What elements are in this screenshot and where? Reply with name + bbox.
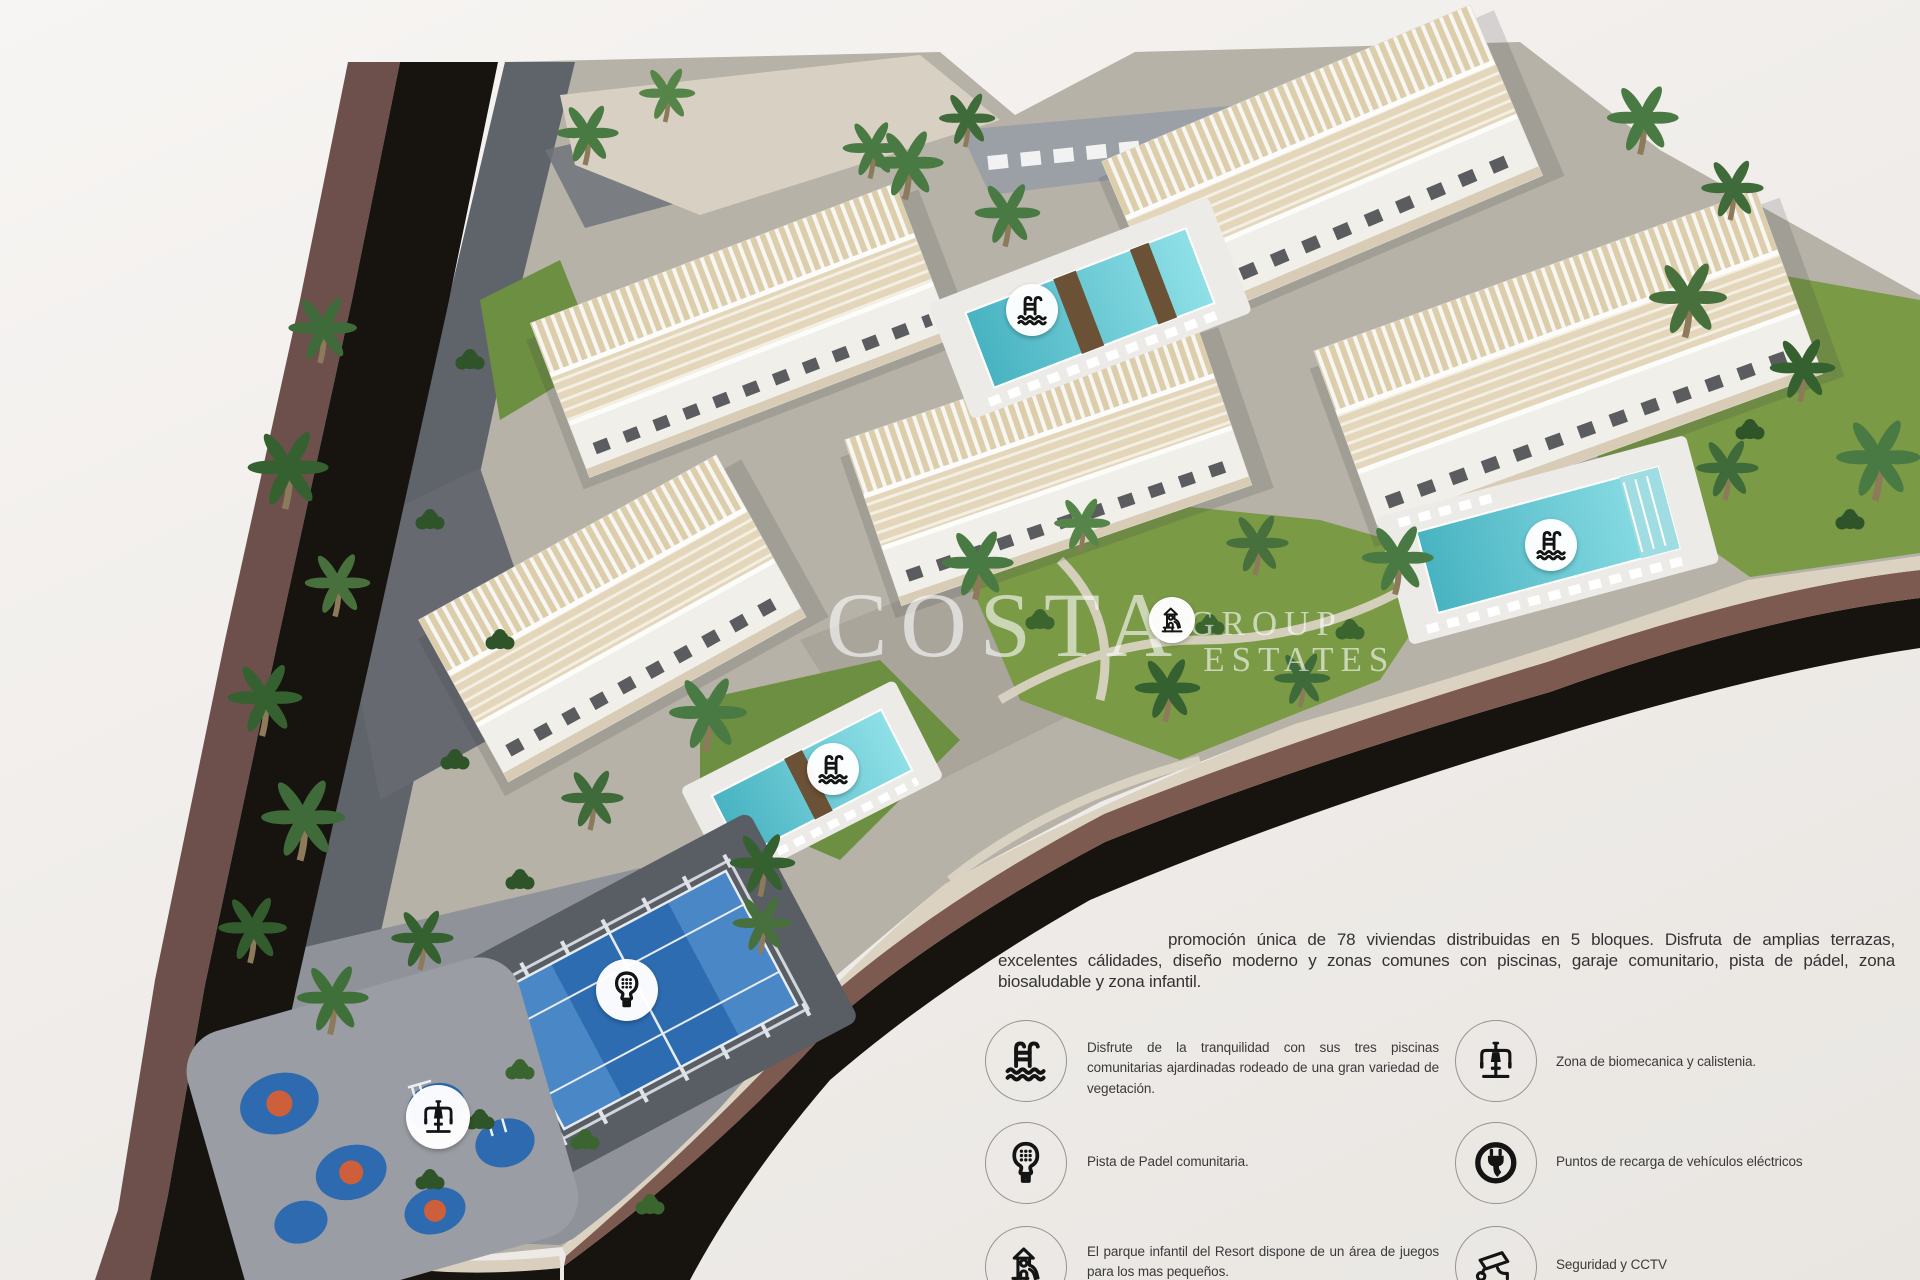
legend-text-pools: Disfrute de la tranquilidad con sus tres… — [1087, 1038, 1439, 1099]
render-page: COSTA GROUP ESTATES promoción única de 7… — [0, 0, 1920, 1280]
legend-text-ev-charging: Puntos de recarga de vehículos eléctrico… — [1556, 1152, 1904, 1172]
ev-charging-icon — [1455, 1122, 1537, 1204]
legend-text-cctv: Seguridad y CCTV — [1556, 1255, 1904, 1275]
biomechanics-icon — [1455, 1020, 1537, 1102]
playground-icon — [1149, 597, 1195, 643]
pool-ladder-icon — [1006, 284, 1058, 336]
pool-ladder-icon — [985, 1020, 1067, 1102]
biomechanics-icon — [406, 1085, 470, 1149]
legend-text-playground: El parque infantil del Resort dispone de… — [1087, 1242, 1439, 1280]
pool-ladder-icon — [1525, 519, 1577, 571]
pool-ladder-icon — [807, 743, 859, 795]
intro-paragraph: promoción única de 78 viviendas distribu… — [998, 929, 1895, 992]
site-render — [0, 0, 1920, 1280]
padel-racket-icon — [985, 1122, 1067, 1204]
legend-text-padel: Pista de Padel comunitaria. — [1087, 1152, 1439, 1172]
padel-racket-icon — [596, 959, 658, 1021]
legend-text-biomechanics: Zona de biomecanica y calistenia. — [1556, 1052, 1904, 1072]
